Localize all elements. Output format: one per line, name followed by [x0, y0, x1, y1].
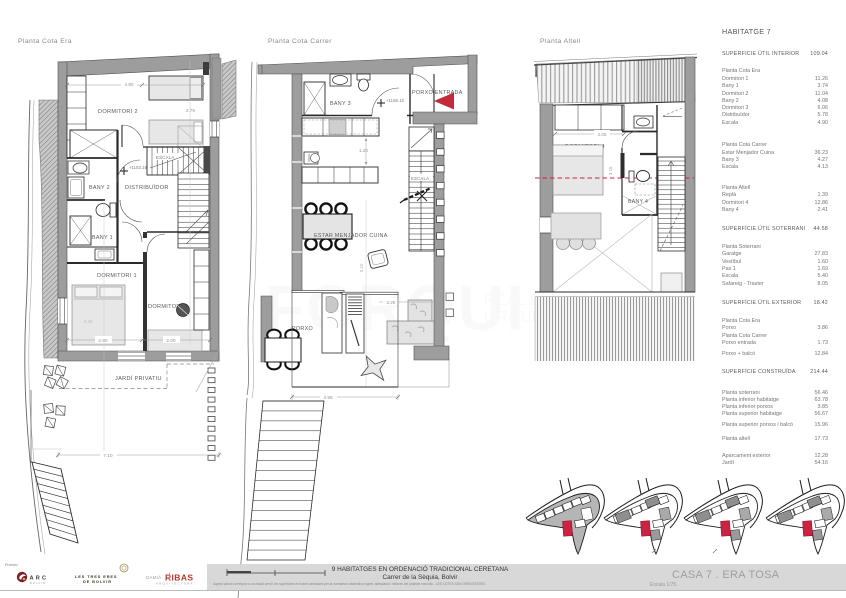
- svg-text:+1153.16: +1153.16: [129, 165, 148, 170]
- svg-text:BANY 4: BANY 4: [628, 199, 648, 205]
- svg-text:4.95: 4.95: [323, 395, 333, 400]
- svg-text:BANY 1: BANY 1: [92, 235, 113, 241]
- svg-text:ESCALA: ESCALA: [411, 176, 429, 181]
- svg-text:BANY 2: BANY 2: [89, 185, 110, 191]
- svg-text:ESCALA: ESCALA: [156, 155, 175, 160]
- svg-text:DE BOLVIR: DE BOLVIR: [83, 579, 112, 584]
- svg-text:7.10: 7.10: [103, 453, 113, 458]
- svg-text:DISTRIBUÏDOR: DISTRIBUÏDOR: [125, 184, 169, 191]
- svg-text:3.16: 3.16: [608, 166, 613, 175]
- svg-text:Planta Altell: Planta Altell: [540, 38, 581, 45]
- svg-text:BANY 3: BANY 3: [330, 101, 351, 107]
- svg-text:ESTAR MENJADOR CUINA: ESTAR MENJADOR CUINA: [314, 233, 388, 239]
- svg-text:BOLVIR: BOLVIR: [30, 581, 46, 585]
- svg-text:+1156.10: +1156.10: [386, 98, 405, 103]
- svg-text:2.00: 2.00: [166, 338, 176, 343]
- svg-text:DORMITORI 2: DORMITORI 2: [98, 109, 138, 115]
- svg-text:DAMIÀ: DAMIÀ: [146, 575, 161, 580]
- svg-text:2.79: 2.79: [186, 108, 195, 113]
- svg-text:ARC: ARC: [30, 576, 49, 582]
- svg-text:1.20: 1.20: [359, 148, 368, 153]
- svg-text:3.00: 3.00: [598, 132, 607, 137]
- svg-text:4.90: 4.90: [124, 82, 134, 87]
- svg-text:DORMITORI 1: DORMITORI 1: [97, 273, 137, 279]
- svg-text:6.10: 6.10: [359, 263, 364, 272]
- svg-text:3.20: 3.20: [84, 319, 93, 324]
- svg-text:JARDÍ PRIVATIU: JARDÍ PRIVATIU: [115, 375, 162, 382]
- svg-text:GROUP: GROUP: [484, 309, 543, 326]
- svg-text:ARQUITECTURA: ARQUITECTURA: [156, 582, 194, 586]
- svg-text:Planta Cota Era: Planta Cota Era: [18, 38, 72, 45]
- svg-text:3.20: 3.20: [387, 300, 396, 305]
- svg-text:2.80: 2.80: [98, 338, 108, 343]
- svg-text:Planta Cota Carrer: Planta Cota Carrer: [268, 38, 332, 45]
- svg-text:PORXO ENTRADA: PORXO ENTRADA: [412, 90, 463, 96]
